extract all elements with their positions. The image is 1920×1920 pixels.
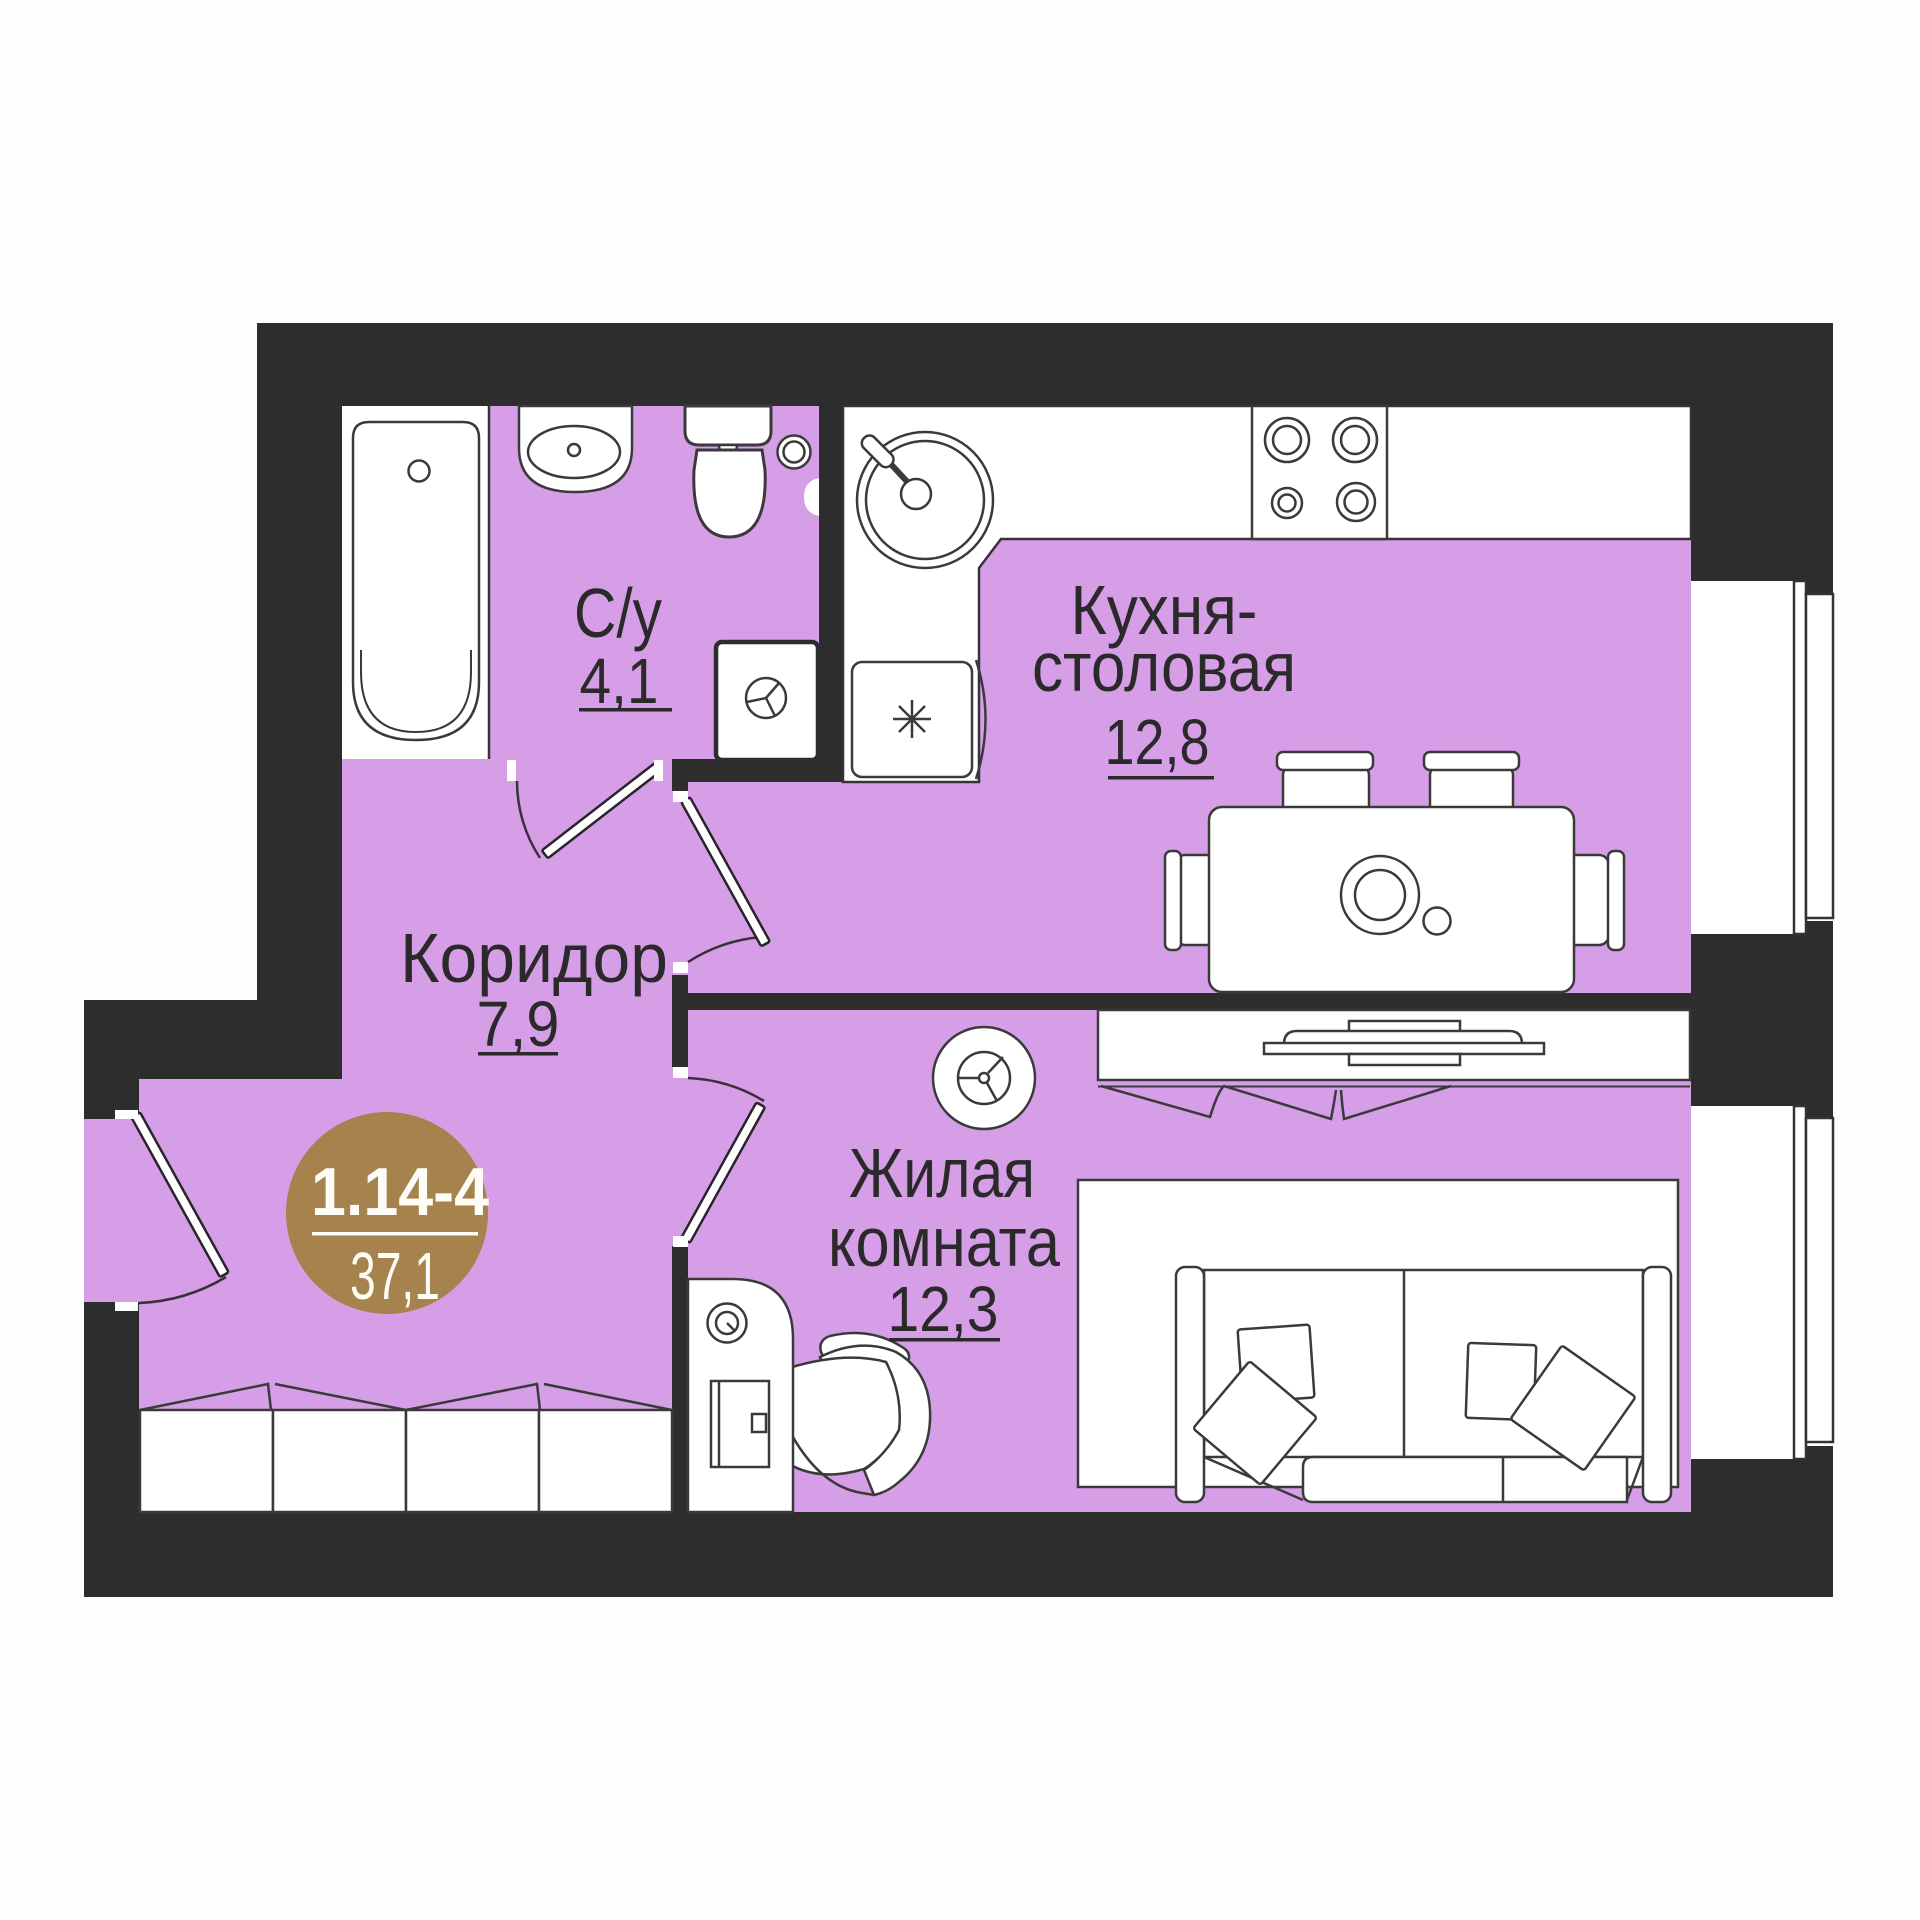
svg-text:7,9: 7,9 bbox=[477, 988, 560, 1060]
svg-text:столовая: столовая bbox=[1032, 628, 1296, 706]
svg-text:12,8: 12,8 bbox=[1105, 706, 1210, 778]
svg-text:4,1: 4,1 bbox=[580, 645, 659, 717]
svg-text:Коридор: Коридор bbox=[400, 919, 668, 997]
svg-text:1.14-4: 1.14-4 bbox=[311, 1154, 489, 1230]
svg-text:комната: комната bbox=[828, 1203, 1060, 1281]
svg-text:С/у: С/у bbox=[574, 574, 662, 652]
svg-text:12,3: 12,3 bbox=[888, 1273, 999, 1345]
svg-text:37,1: 37,1 bbox=[350, 1239, 440, 1314]
svg-text:Жилая: Жилая bbox=[849, 1134, 1035, 1212]
